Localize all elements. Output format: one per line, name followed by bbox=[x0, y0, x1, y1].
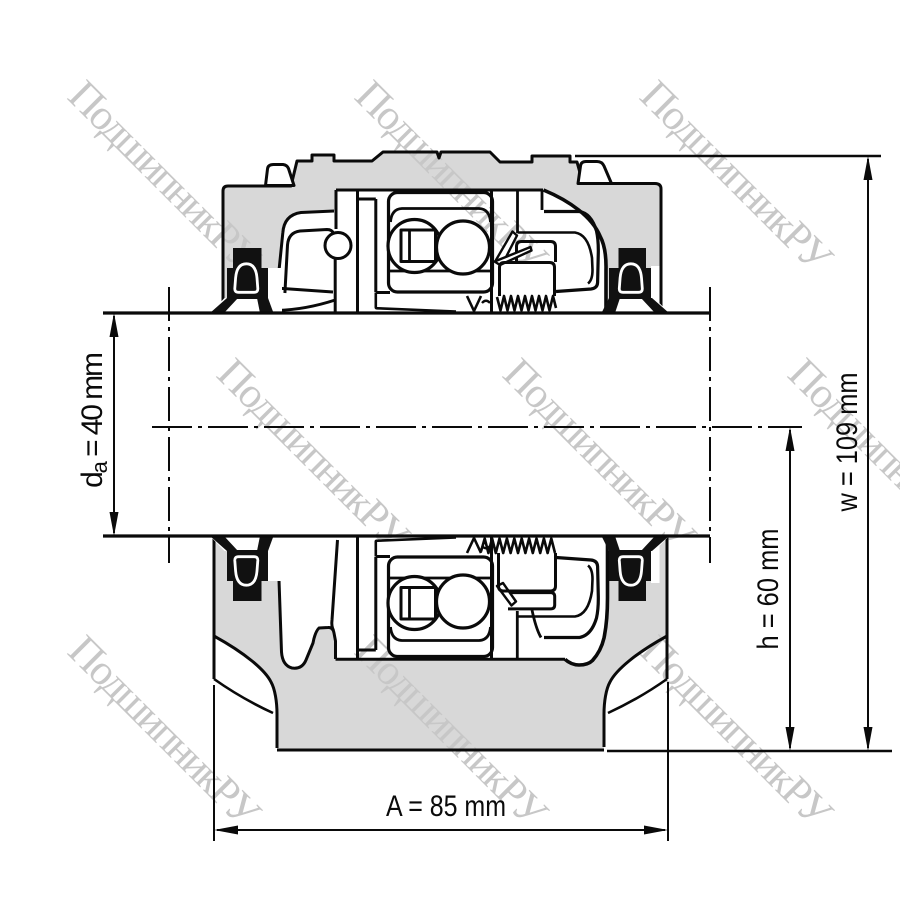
svg-text:w = 109 mm: w = 109 mm bbox=[831, 373, 864, 513]
svg-text:h = 60 mm: h = 60 mm bbox=[752, 529, 785, 650]
svg-text:A = 85 mm: A = 85 mm bbox=[386, 790, 506, 823]
